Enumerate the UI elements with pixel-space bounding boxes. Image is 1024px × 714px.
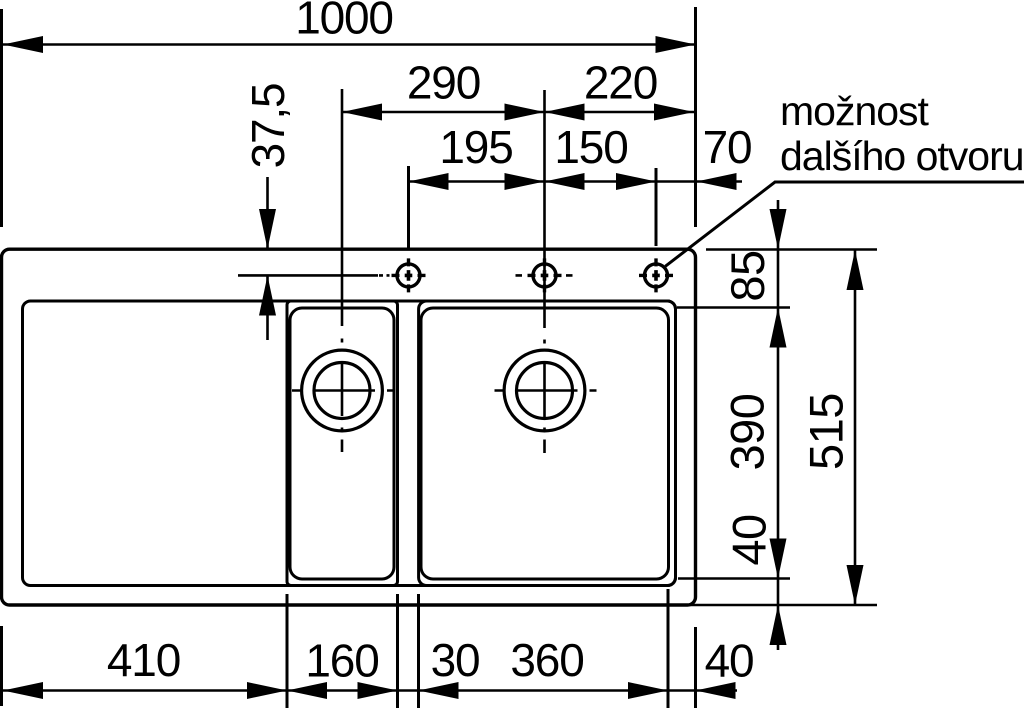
svg-text:410: 410 [107,634,180,686]
svg-text:160: 160 [305,635,378,687]
svg-text:150: 150 [554,121,627,173]
svg-text:1000: 1000 [295,0,393,44]
svg-text:dalšího otvoru: dalšího otvoru [780,133,1024,179]
svg-text:220: 220 [584,57,657,109]
svg-text:možnost: možnost [780,88,930,134]
svg-text:37,5: 37,5 [242,84,294,169]
svg-text:390: 390 [720,394,773,471]
svg-text:30: 30 [431,634,480,686]
svg-text:85: 85 [721,250,774,301]
svg-text:195: 195 [439,121,512,173]
svg-text:40: 40 [722,514,775,565]
svg-text:70: 70 [703,121,752,173]
svg-text:360: 360 [510,634,583,686]
svg-text:40: 40 [705,635,754,687]
svg-text:515: 515 [799,393,852,470]
svg-text:290: 290 [407,57,480,109]
